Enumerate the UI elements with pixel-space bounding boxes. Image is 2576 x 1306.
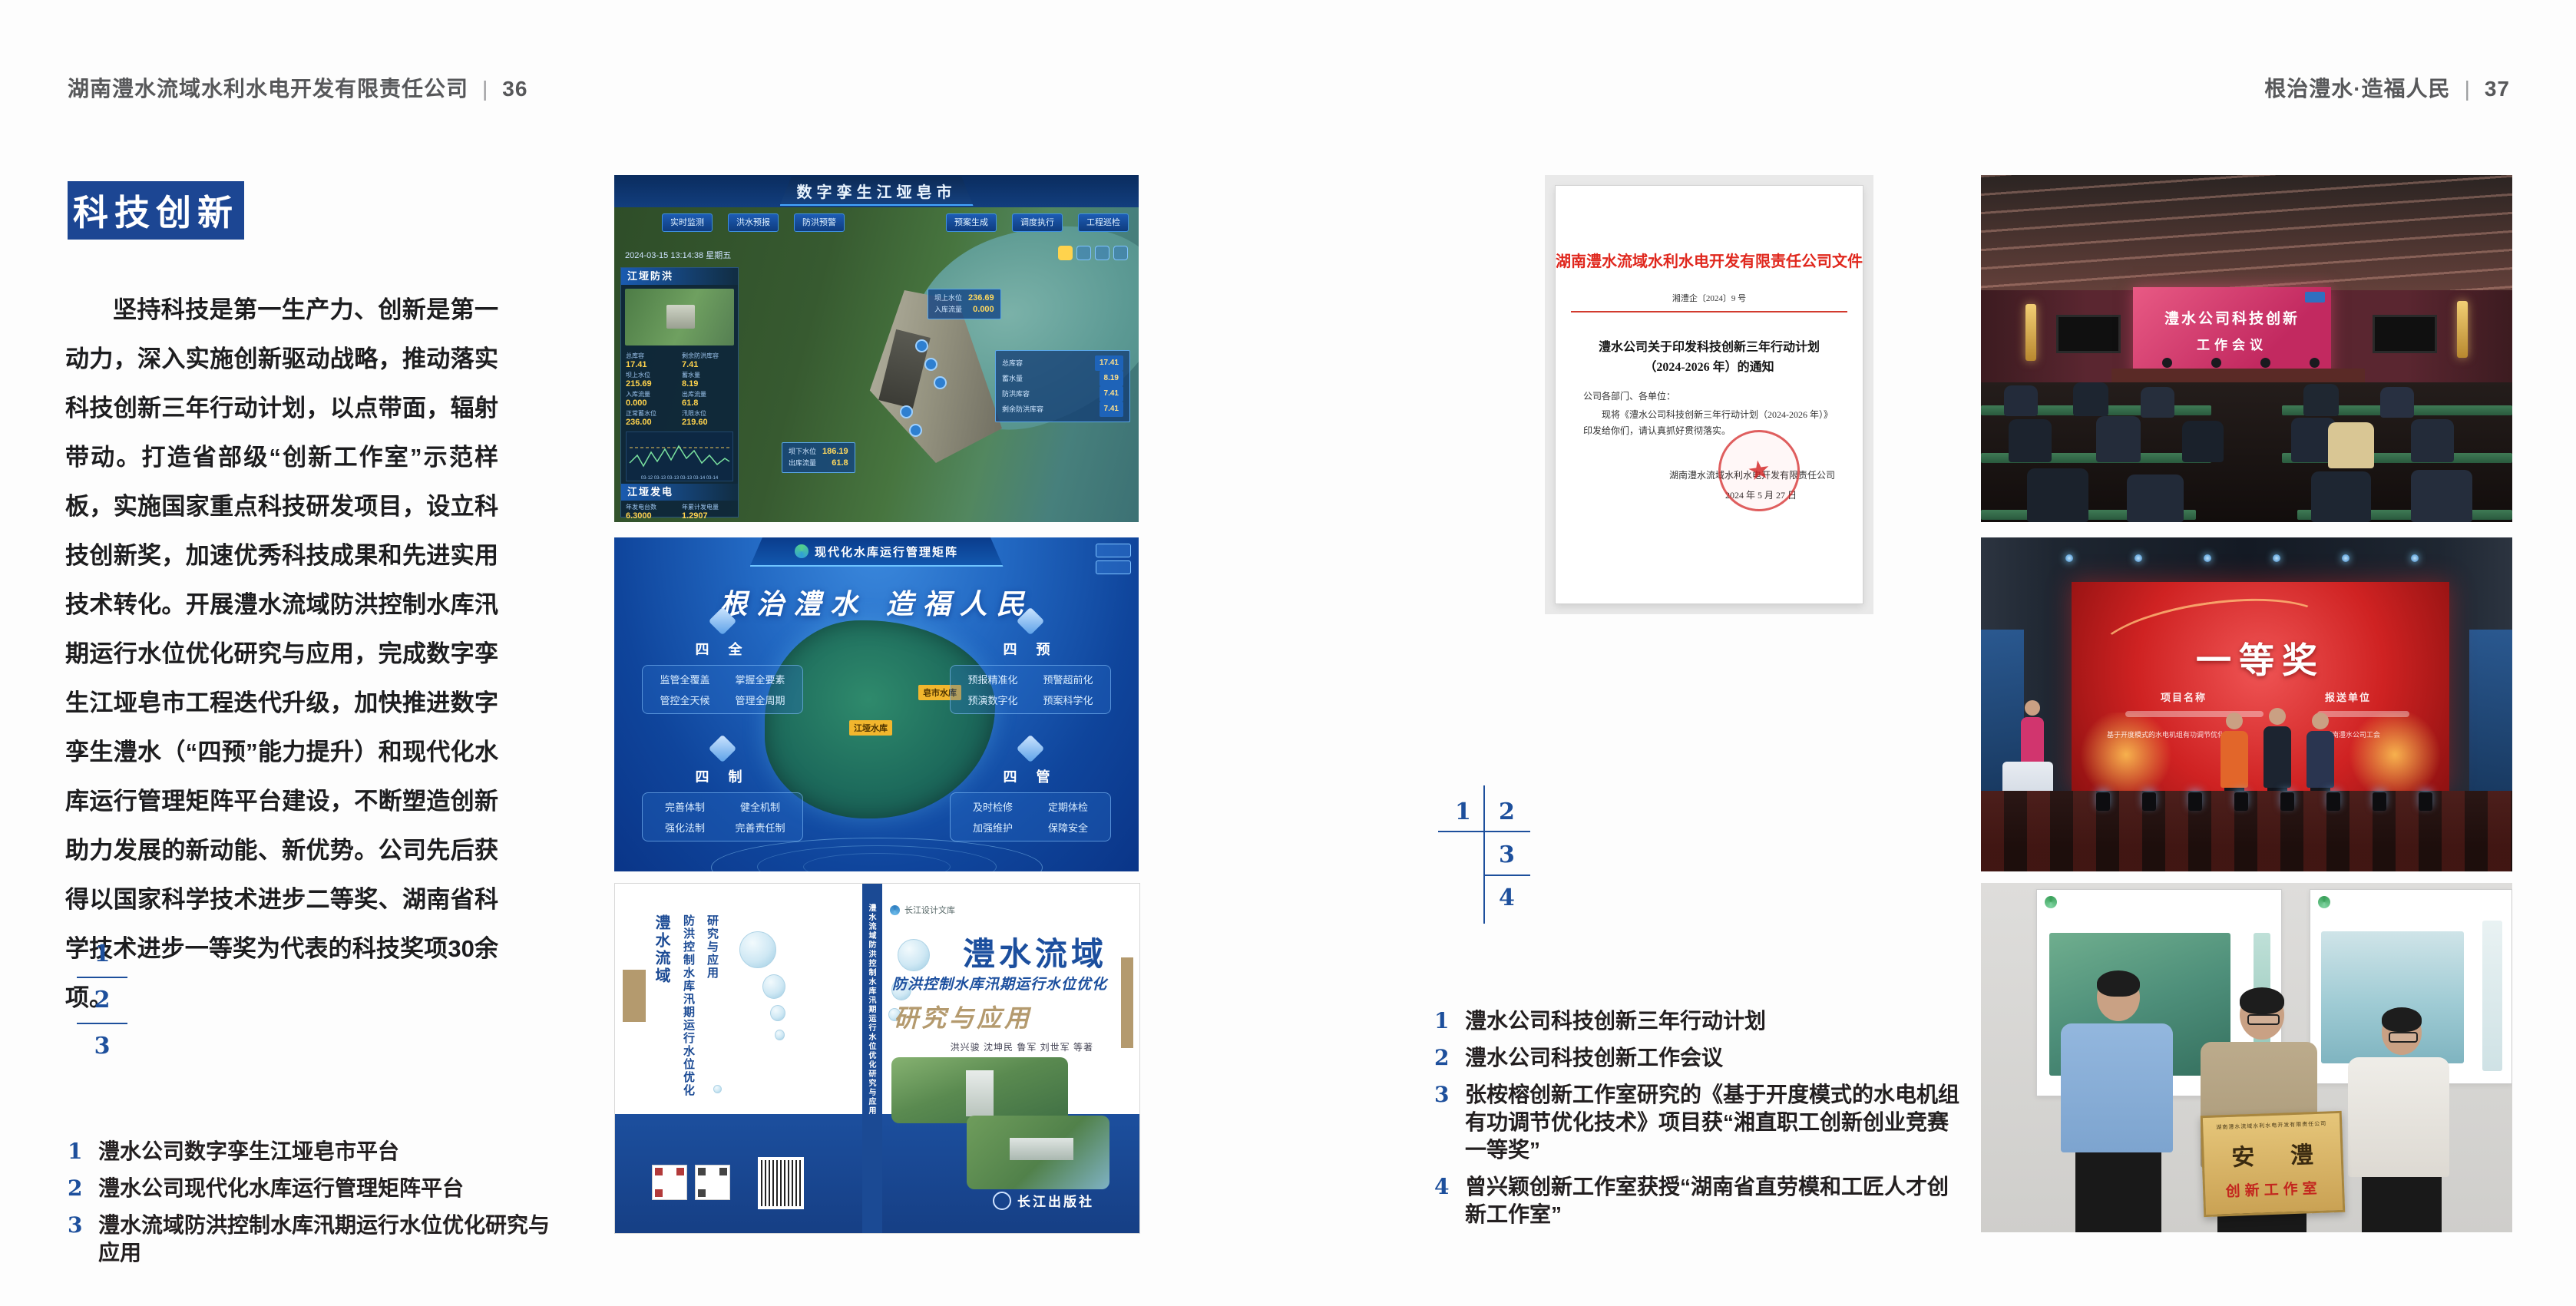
caption-row: 4 曾兴颖创新工作室获授“湖南省直劳模和工匠人才创新工作室”	[1434, 1173, 1964, 1228]
screen-glow	[2076, 713, 2176, 797]
index-grid-line	[1483, 785, 1485, 924]
screen-title-line1: 澧水公司科技创新	[2133, 307, 2331, 328]
group-items: 监管全覆盖 掌握全要素 管控全天候 管理全周期	[642, 665, 803, 714]
floor-light-fixture	[2142, 792, 2156, 811]
metric: 蓄水量8.19	[682, 370, 733, 389]
group-items: 及时检修 定期体检 加强维护 保障安全	[950, 792, 1111, 841]
unit-col-header: 报送单位	[2325, 689, 2371, 704]
seal-star-icon: ★	[1745, 454, 1773, 488]
metric: 剩余防洪库容7.41	[682, 351, 733, 370]
speaker-silhouette	[2260, 358, 2270, 368]
floor-light-fixture	[2234, 792, 2248, 811]
innovation-studio-plaque: 湖南澧水流域水利水电开发有限责任公司 安 澧 创新工作室	[2201, 1111, 2345, 1217]
caption-number: 4	[1434, 1173, 1465, 1228]
caption-text: 澧水公司科技创新工作会议	[1465, 1044, 1723, 1072]
tab-flood-forecast[interactable]: 洪水预报	[728, 213, 779, 232]
matrix-group-siyu: 四 预 预报精准化 预警超前化 预演数字化 预案科学化	[950, 611, 1111, 714]
right-header-separator: |	[2451, 77, 2485, 101]
document-number: 湘澧企〔2024〕9 号	[1556, 292, 1863, 304]
figure-book-cover: 澧水流域 防洪控制水库汛期运行水位优化 研究与应用 澧水流域防洪控制水库汛期运行…	[614, 883, 1140, 1234]
tab-dispatch-execution[interactable]: 调度执行	[1012, 213, 1063, 232]
document-red-header: 湖南澧水流域水利水电开发有限责任公司文件	[1556, 249, 1863, 271]
forecast-icon	[1017, 607, 1045, 636]
audience-silhouette	[2004, 385, 2038, 416]
metric: 当前出力0.00	[682, 521, 733, 522]
caption-row: 2 澧水公司科技创新工作会议	[1434, 1044, 1964, 1072]
tab-project-inspection[interactable]: 工程巡检	[1078, 213, 1129, 232]
left-header-title: 湖南澧水流域水利水电开发有限责任公司	[68, 77, 468, 101]
matrix-header: 现代化水库运行管理矩阵	[750, 537, 1004, 567]
floor-light-fixture	[2419, 792, 2432, 811]
left-header-separator: |	[468, 77, 502, 101]
project-line: 基于开度模式的水电机组有功调节优化技术	[2107, 729, 2238, 739]
dam-valley-photo	[891, 1057, 1068, 1123]
brochure-spread: 湖南澧水流域水利水电开发有限责任公司|36 科技创新 坚持科技是第一生产力、创新…	[0, 0, 2576, 1306]
floor-light-fixture	[2326, 792, 2340, 811]
settings-icon[interactable]	[1113, 246, 1128, 260]
project-col-header: 项目名称	[2161, 689, 2207, 704]
plaque-header: 湖南澧水流域水利水电开发有限责任公司	[2203, 1119, 2340, 1132]
figure-index-1: 1	[1455, 798, 1471, 825]
group-items: 预报精准化 预警超前化 预演数字化 预案科学化	[950, 665, 1111, 714]
dam-closeup-photo	[967, 1116, 1109, 1189]
floor-light-fixture	[2188, 792, 2202, 811]
tab-plan-generation[interactable]: 预案生成	[946, 213, 997, 232]
tab-flood-warning[interactable]: 防洪预警	[794, 213, 845, 232]
document-title-line1: 澧水公司关于印发科技创新三年行动计划	[1556, 336, 1863, 355]
metric: 总库容17.41	[626, 351, 677, 370]
audience-silhouette	[2411, 470, 2472, 522]
document-body: 现将《澧水公司科技创新三年行动计划（2024-2026 年）》印发给你们，请认真…	[1583, 407, 1837, 439]
book-subtitle: 防洪控制水库汛期运行水位优化	[892, 973, 1107, 994]
metric: 出库流量61.8	[682, 389, 733, 408]
speaker-silhouette	[2310, 358, 2320, 368]
barcode	[758, 1157, 804, 1209]
book-title: 澧水流域	[963, 928, 1107, 975]
dashboard-title: 数字孪生江垭皂市	[780, 177, 974, 206]
divider	[77, 977, 127, 978]
series-name: 长江设计文库	[904, 904, 955, 916]
right-page-header: 根治澧水·造福人民|37	[2264, 72, 2510, 103]
caption-text: 澧水公司现代化水库运行管理矩阵平台	[98, 1175, 464, 1202]
book-authors: 洪兴骏 沈坤民 鲁军 刘世军 等著	[951, 1040, 1093, 1053]
institution-icon	[709, 735, 737, 763]
layers-icon[interactable]	[1076, 246, 1091, 260]
audience-silhouette	[2411, 419, 2454, 462]
sensor-dot	[915, 339, 928, 352]
user-icon[interactable]	[1058, 246, 1073, 260]
spine-title: 澧水流域防洪控制水库汛期运行水位优化研究与应用	[865, 904, 877, 1116]
right-header-title: 根治澧水·造福人民	[2264, 77, 2450, 101]
maintenance-icon	[1017, 735, 1045, 763]
sensor-dot	[934, 376, 947, 389]
series-logo: 长江设计文库	[890, 904, 955, 916]
floor-light-fixture	[2373, 792, 2386, 811]
group-title: 四 预	[950, 639, 1111, 659]
qr-code	[695, 1165, 730, 1200]
water-droplet	[762, 974, 785, 999]
floor-light-fixture	[2280, 792, 2294, 811]
panel-title: 江垭发电	[621, 484, 738, 501]
figure-index-3: 3	[77, 1035, 127, 1058]
caption-row: 3 澧水流域防洪控制水库汛期运行水位优化研究与应用	[68, 1212, 559, 1267]
figure-award-photo: 一等奖 项目名称 报送单位 基于开度模式的水电机组有功调节优化技术 湖南澧水公司…	[1981, 537, 2512, 871]
audience-silhouette	[2303, 384, 2339, 416]
audience-silhouette	[2027, 468, 2088, 522]
left-page-header: 湖南澧水流域水利水电开发有限责任公司|36	[68, 72, 527, 103]
side-screen	[2469, 630, 2512, 798]
sensor-dot	[924, 358, 937, 371]
audience-silhouette	[2182, 421, 2224, 462]
matrix-group-siquan: 四 全 监管全覆盖 掌握全要素 管控全天候 管理全周期	[642, 611, 803, 714]
group-title: 四 管	[950, 766, 1111, 786]
wall-tv	[2056, 315, 2121, 353]
right-page-number: 37	[2485, 77, 2510, 101]
upstream-level-callout: 坝上水位236.69 入库流量0.000	[928, 289, 1001, 319]
document-page: 湖南澧水流域水利水电开发有限责任公司文件 湘澧企〔2024〕9 号 澧水公司关于…	[1556, 186, 1863, 603]
audience-silhouette	[2073, 382, 2108, 416]
caption-number: 1	[1434, 1007, 1465, 1035]
floor-light-fixture	[2096, 792, 2110, 811]
led-screen: 一等奖 项目名称 报送单位 基于开度模式的水电机组有功调节优化技术 湖南澧水公司…	[2072, 582, 2449, 791]
screen-logo-icon	[2305, 292, 2325, 303]
book-spine: 澧水流域防洪控制水库汛期运行水位优化研究与应用	[862, 884, 882, 1233]
poster-vertical-text-bar	[2482, 921, 2502, 1071]
screen-title-line2: 工作会议	[2133, 334, 2331, 353]
matrix-group-sizhi: 四 制 完善体制 健全机制 强化法制 完善责任制	[642, 739, 803, 841]
host-magenta	[2021, 700, 2044, 766]
right-captions: 1 澧水公司科技创新三年行动计划 2 澧水公司科技创新工作会议 3 张桉榕创新工…	[1434, 1007, 1964, 1238]
water-droplet	[775, 1030, 785, 1040]
dam-inset-photo	[625, 289, 734, 346]
left-page-number: 36	[502, 77, 527, 101]
flood-control-panel: 江垭防洪 总库容17.41 剩余防洪库容7.41 坝上水位215.69 蓄水量8…	[620, 267, 739, 517]
audience-silhouette	[2009, 419, 2052, 462]
speaker-silhouette	[2211, 358, 2221, 368]
stage-light	[2135, 554, 2142, 562]
caption-text: 澧水流域防洪控制水库汛期运行水位优化研究与应用	[98, 1212, 559, 1267]
water-droplet	[713, 1085, 722, 1093]
red-rule	[1571, 311, 1847, 312]
figure-index-2: 2	[77, 989, 127, 1012]
caption-text: 澧水公司科技创新三年行动计划	[1465, 1007, 1766, 1035]
sensor-dot	[909, 424, 922, 437]
group-items: 完善体制 健全机制 强化法制 完善责任制	[642, 792, 803, 841]
metric: 入库流量0.000	[626, 389, 677, 408]
metric: 汛限水位219.60	[682, 408, 733, 428]
flood-metrics: 总库容17.41 剩余防洪库容7.41 坝上水位215.69 蓄水量8.19 入…	[621, 349, 738, 429]
map-label-jiangya: 江垭水库	[849, 720, 892, 736]
caption-number: 1	[68, 1138, 98, 1165]
person-blue-polo	[2061, 974, 2176, 1232]
caption-number: 3	[1434, 1081, 1465, 1164]
figure-index-2: 2	[1499, 798, 1515, 825]
metric: 坝上水位215.69	[626, 370, 677, 389]
caption-text: 澧水公司数字孪生江垭皂市平台	[98, 1138, 399, 1165]
fullscreen-button[interactable]	[1096, 544, 1131, 557]
caption-row: 1 澧水公司数字孪生江垭皂市平台	[68, 1138, 559, 1165]
downstream-level-callout: 坝下水位186.19 出库流量61.8	[782, 442, 855, 473]
figure-official-document: 湖南澧水流域水利水电开发有限责任公司文件 湘澧企〔2024〕9 号 澧水公司关于…	[1545, 175, 1873, 614]
monitor-icon	[709, 607, 737, 636]
front-tan-bar	[1121, 957, 1133, 1048]
stage-light	[2342, 554, 2349, 562]
caption-number: 2	[1434, 1044, 1465, 1072]
index-grid-line	[1483, 875, 1530, 876]
water-droplet	[739, 931, 776, 968]
wall-tv	[2373, 315, 2437, 353]
stage-light	[2411, 554, 2419, 562]
group-title: 四 制	[642, 766, 803, 786]
caption-number: 2	[68, 1175, 98, 1202]
award-title: 一等奖	[2072, 633, 2449, 683]
caption-row: 2 澧水公司现代化水库运行管理矩阵平台	[68, 1175, 559, 1202]
person-white-shirt	[2348, 1010, 2455, 1232]
left-figure-index: 1 2 3	[77, 943, 127, 1058]
metric: 年发电台数6.3000	[626, 502, 677, 521]
book-title-tail: 研究与应用	[894, 999, 1032, 1034]
publisher: 长江出版社	[993, 1191, 1094, 1210]
qr-code	[652, 1165, 687, 1200]
wall-lamp	[2457, 301, 2468, 358]
stage-light	[2065, 554, 2073, 562]
sensor-dot	[900, 405, 913, 418]
matrix-title: 现代化水库运行管理矩阵	[815, 544, 958, 560]
publisher-logo-icon	[993, 1192, 1011, 1210]
audience-silhouette	[2141, 387, 2174, 418]
publisher-name: 长江出版社	[1017, 1191, 1094, 1210]
figure-index-3: 3	[1499, 841, 1515, 868]
stage-light	[2273, 554, 2280, 562]
dashboard-timestamp: 2024-03-15 13:14:38 星期五	[625, 249, 731, 261]
caption-text: 张桉榕创新工作室研究的《基于开度模式的水电机组有功调节优化技术》项目获“湘直职工…	[1465, 1081, 1964, 1164]
left-captions: 1 澧水公司数字孪生江垭皂市平台 2 澧水公司现代化水库运行管理矩阵平台 3 澧…	[68, 1138, 559, 1276]
lhpc-logo-icon	[2318, 896, 2330, 908]
plaque-big-text: 安 澧	[2204, 1135, 2341, 1173]
figure-plaque-photo: 湖南澧水流域水利水电开发有限责任公司 安 澧 创新工作室	[1981, 883, 2512, 1232]
chart-x-ticks: 03-12 03-13 03-13 03-13 03-14 03-14	[627, 476, 732, 481]
lhpc-logo-icon	[2045, 896, 2057, 908]
back-cover-title: 澧水流域 防洪控制水库汛期运行水位优化 研究与应用	[650, 914, 720, 1097]
back-tan-block	[623, 970, 646, 1022]
metric: 正常蓄水位236.00	[626, 408, 677, 428]
plaque-sub-text: 创新工作室	[2205, 1176, 2343, 1202]
changjiang-design-logo-icon	[890, 905, 900, 915]
lhpc-logo-icon	[795, 544, 809, 558]
caption-text: 曾兴颖创新工作室获授“湖南省直劳模和工匠人才创新工作室”	[1465, 1173, 1964, 1228]
tab-realtime-monitoring[interactable]: 实时监测	[662, 213, 713, 232]
audience-silhouette	[2311, 471, 2371, 522]
figure-meeting-photo: 澧水公司科技创新 工作会议	[1981, 175, 2512, 522]
audience-silhouette	[2380, 387, 2414, 418]
speaker-silhouette	[2162, 358, 2172, 368]
section-badge: 科技创新	[68, 181, 244, 240]
power-metrics: 年发电台数6.3000 年累计发电量1.2907 月累计发电量3359.21 当…	[621, 501, 738, 522]
stage-light	[2204, 554, 2211, 562]
caption-number: 3	[68, 1212, 98, 1267]
audience-tan-coat	[2328, 422, 2374, 468]
wall-lamp	[2025, 304, 2036, 361]
figure-index-4: 4	[1499, 884, 1515, 911]
meeting-ceiling	[1981, 175, 2512, 290]
reservoir-stat-box: 总库容17.41 蓄水量8.19 防洪库容7.41 剩余防洪库容7.41	[995, 350, 1130, 422]
caption-row: 1 澧水公司科技创新三年行动计划	[1434, 1007, 1964, 1035]
metric: 月累计发电量3359.21	[626, 521, 677, 522]
water-droplet	[898, 939, 930, 971]
document-salutation: 公司各部门、各单位：	[1583, 388, 1837, 405]
metric: 年累计发电量1.2907	[682, 502, 733, 521]
menu-button[interactable]	[1096, 560, 1131, 574]
matrix-group-siguan: 四 管 及时检修 定期体检 加强维护 保障安全	[950, 739, 1111, 841]
divider	[77, 1023, 127, 1024]
locate-icon[interactable]	[1095, 246, 1109, 260]
figure-digital-twin-dashboard: 数字孪生江垭皂市 实时监测 洪水预报 防洪预警 预案生成 调度执行 工程巡检 2…	[614, 175, 1139, 522]
panel-title: 江垭防洪	[621, 268, 738, 285]
water-level-chart: 03-12 03-13 03-13 03-13 03-14 03-14	[626, 431, 733, 481]
figure-matrix-platform: 现代化水库运行管理矩阵 根治澧水 造福人民 江垭水库 皂市水库 四 全 监管全覆…	[614, 537, 1139, 871]
audience-silhouette	[2096, 416, 2141, 462]
body-paragraph: 坚持科技是第一生产力、创新是第一动力，深入实施创新驱动战略，推动落实科技创新三年…	[65, 286, 498, 1023]
screen-glow	[2345, 713, 2445, 797]
caption-row: 3 张桉榕创新工作室研究的《基于开度模式的水电机组有功调节优化技术》项目获“湘直…	[1434, 1081, 1964, 1164]
document-title-line2: （2024-2026 年）的通知	[1556, 356, 1863, 375]
water-droplet	[770, 1005, 785, 1021]
audience-silhouette	[2127, 474, 2184, 522]
index-grid-line	[1438, 831, 1530, 832]
group-title: 四 全	[642, 639, 803, 659]
figure-index-1: 1	[77, 943, 127, 966]
